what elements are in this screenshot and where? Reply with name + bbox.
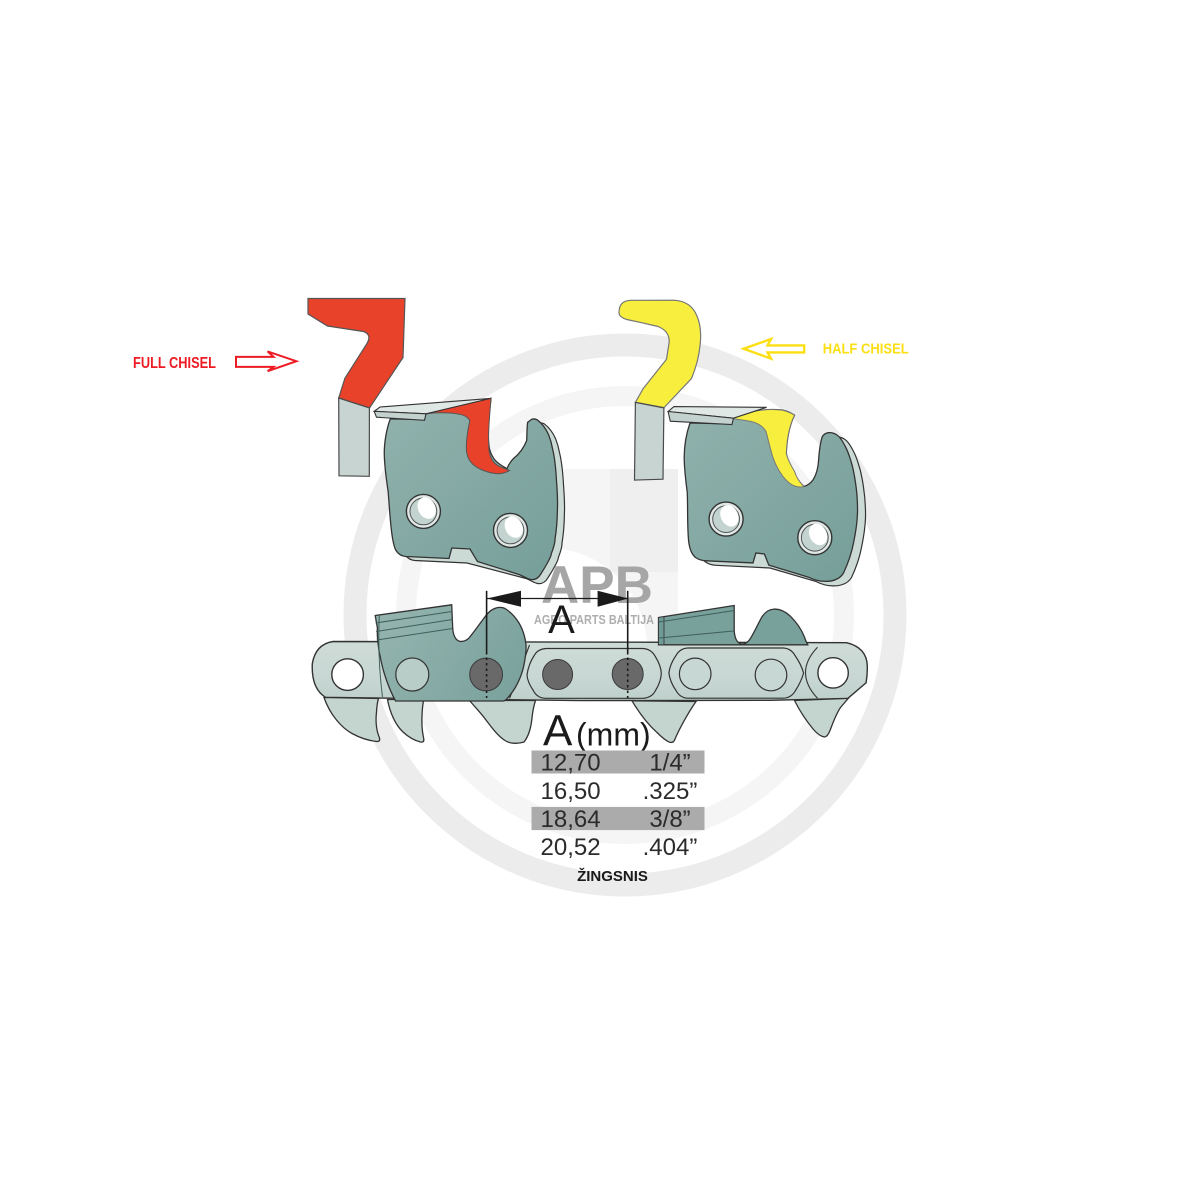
svg-text:1/4”: 1/4” — [649, 750, 690, 777]
svg-text:.404”: .404” — [643, 834, 698, 861]
svg-text:.325”: .325” — [643, 778, 698, 805]
svg-text:12,70: 12,70 — [541, 750, 601, 777]
svg-text:ŽINGSNIS: ŽINGSNIS — [577, 867, 648, 885]
svg-text:18,64: 18,64 — [541, 806, 601, 833]
svg-text:FULL CHISEL: FULL CHISEL — [133, 355, 216, 372]
svg-text:(mm): (mm) — [576, 717, 651, 753]
svg-text:A: A — [543, 707, 573, 756]
svg-text:A: A — [548, 598, 575, 642]
svg-text:3/8”: 3/8” — [649, 806, 690, 833]
svg-text:16,50: 16,50 — [541, 778, 601, 805]
svg-text:HALF CHISEL: HALF CHISEL — [823, 342, 909, 358]
svg-text:20,52: 20,52 — [541, 834, 601, 861]
